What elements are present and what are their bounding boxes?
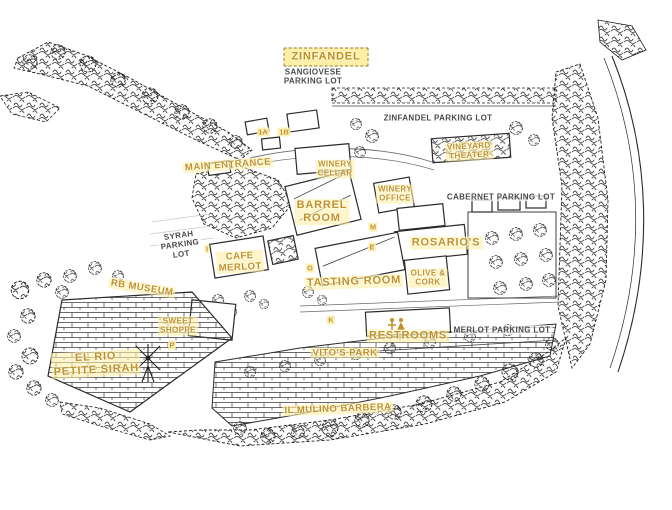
marker-1a: 1A <box>257 128 270 137</box>
winery-map: ZINFANDELSANGIOVESE PARKING LOTZINFANDEL… <box>0 0 672 510</box>
marker-e: E <box>368 243 376 252</box>
marker-m: M <box>368 223 377 232</box>
marker-g: G <box>306 264 315 273</box>
marker-k: K <box>327 316 335 325</box>
marker-p: P <box>168 341 176 350</box>
marker-1b: 1B <box>278 128 291 137</box>
markers-layer: 1A1BMEIGKP <box>0 0 672 510</box>
marker-i: I <box>204 245 209 254</box>
